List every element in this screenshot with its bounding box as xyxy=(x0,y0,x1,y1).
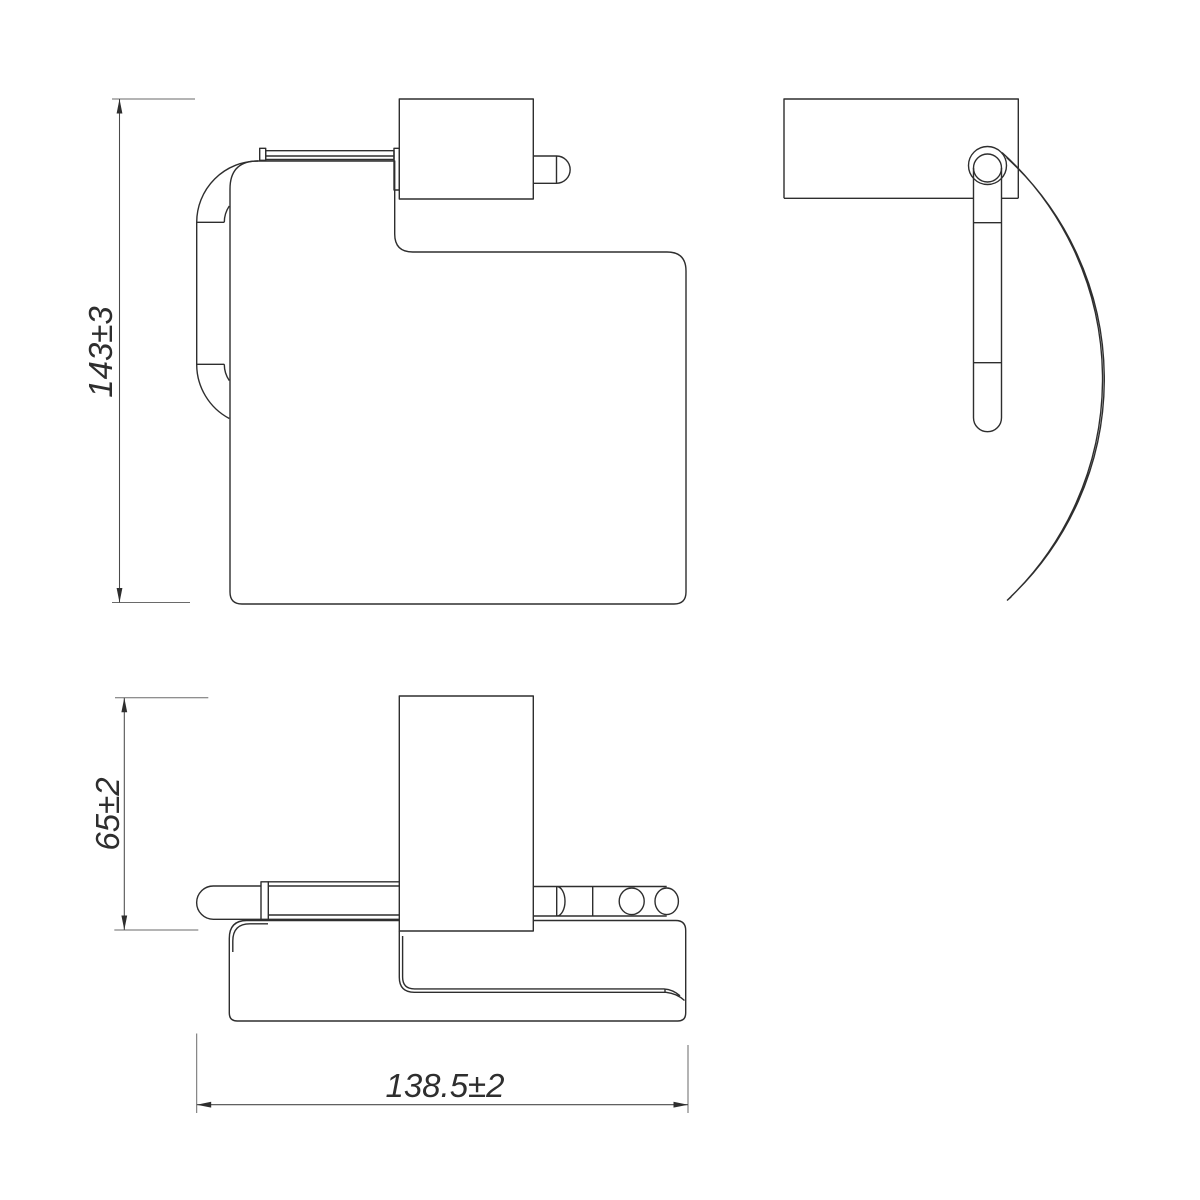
dim-width-label: 138.5±2 xyxy=(385,1067,504,1104)
mount-bracket-front xyxy=(399,99,533,199)
mount-bracket-bottom xyxy=(399,696,533,931)
dim-height-extension-lines xyxy=(112,99,195,603)
dim-width: 138.5±2 xyxy=(197,1034,688,1114)
rod-left-bottom xyxy=(197,886,261,919)
side-view xyxy=(784,99,1104,601)
front-view xyxy=(197,99,686,604)
dim-width-arrow-right xyxy=(674,1102,689,1108)
spindle-end-cap-bottom xyxy=(655,888,678,915)
hinge-inner-circle xyxy=(974,154,1002,182)
roll-arm-outline xyxy=(197,161,258,419)
dim-width-arrow-left xyxy=(197,1102,212,1108)
dim-depth-extension-lines xyxy=(114,698,208,930)
dim-height-label: 143±3 xyxy=(82,306,119,398)
spindle-ring-bottom xyxy=(619,888,644,915)
roll-arm-inner-arcs xyxy=(224,206,229,381)
rod-collar-bottom xyxy=(261,882,268,920)
technical-drawing-page: 143±3 65±2 138.5±2 xyxy=(0,0,1200,1200)
bottom-view xyxy=(197,696,686,1021)
dim-height-arrow-top xyxy=(117,99,123,114)
side-stub-front xyxy=(533,156,570,183)
technical-drawing: 143±3 65±2 138.5±2 xyxy=(0,0,1200,1200)
base-thickness-corner xyxy=(233,924,268,952)
dim-depth-arrow-top xyxy=(121,698,127,713)
rod-right-bottom xyxy=(533,887,666,917)
dim-depth: 65±2 xyxy=(89,698,208,930)
roll-bar-front xyxy=(266,151,394,160)
dim-depth-arrow-bottom xyxy=(121,916,127,931)
roll-bar-end-cap xyxy=(260,148,266,160)
dim-height-arrow-bottom xyxy=(117,588,123,603)
roll-arm-tangent-lines xyxy=(197,222,225,364)
cover-step-outer-bottom xyxy=(399,931,684,1001)
cover-step-inner-bottom xyxy=(403,936,680,996)
rod-body-lines-bottom xyxy=(268,882,399,920)
roll-arm-side xyxy=(974,168,1002,432)
dim-depth-label: 65±2 xyxy=(89,777,126,850)
base-outline-bottom xyxy=(229,921,685,1022)
dim-height: 143±3 xyxy=(82,99,195,603)
cover-profile-side xyxy=(1002,153,1104,601)
roll-arm-side-tangents xyxy=(974,223,1002,363)
cover-outline-front xyxy=(230,161,686,604)
